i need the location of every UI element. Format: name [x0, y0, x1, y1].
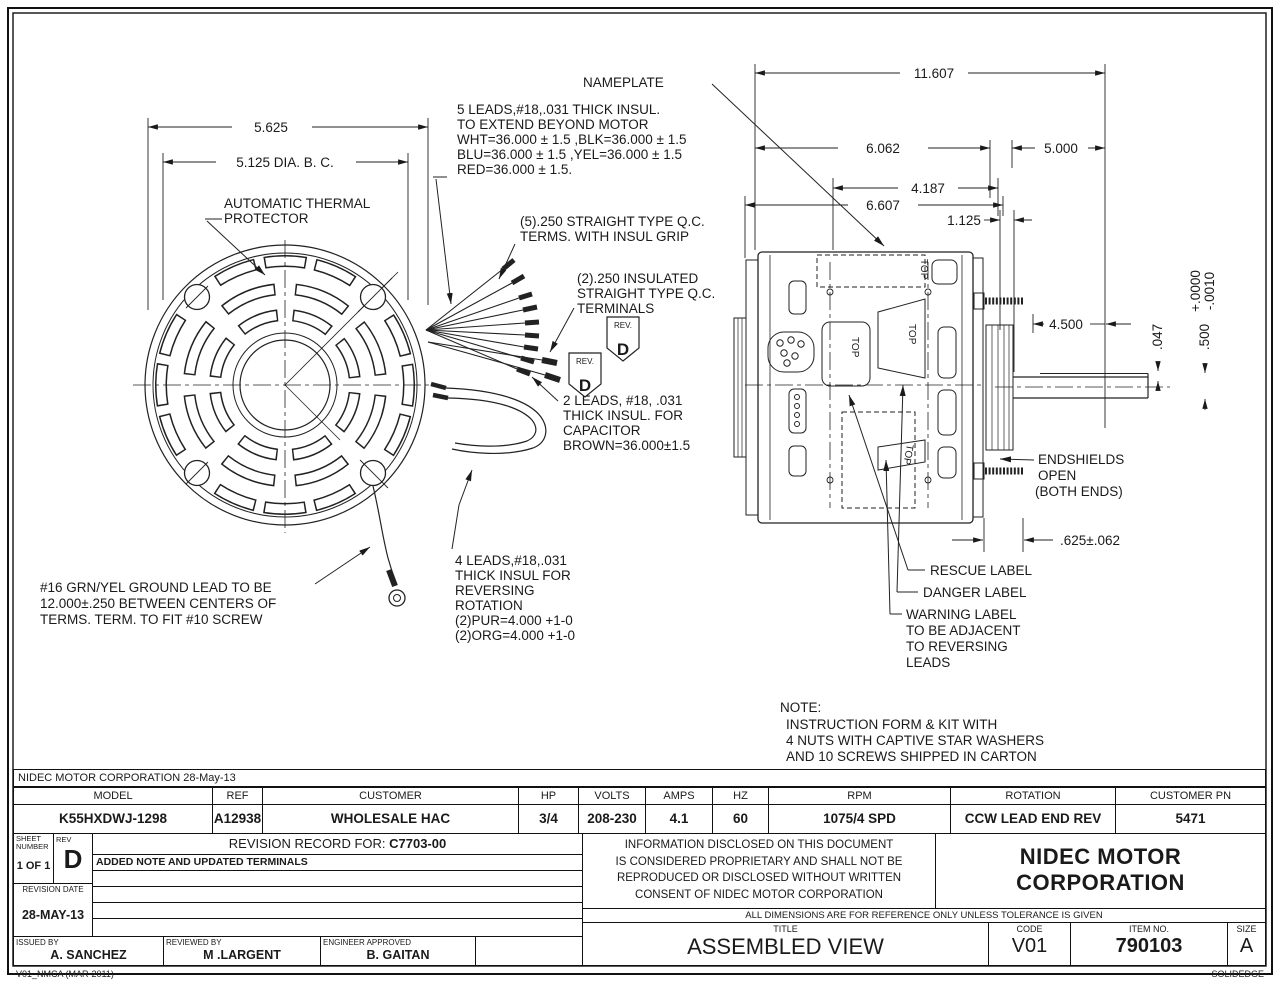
ground-line: 12.000±.250 BETWEEN CENTERS OF: [40, 596, 276, 611]
dim-4187: 4.187: [911, 181, 945, 196]
issued-by-label: ISSUED BY: [14, 937, 163, 948]
reviewed-by-label: REVIEWED BY: [164, 937, 320, 948]
issued-by-value: A. SANCHEZ: [14, 948, 163, 962]
dim-6607: 6.607: [866, 198, 900, 213]
signoff-empty-cell: [475, 936, 583, 966]
endshields-line: (BOTH ENDS): [1035, 484, 1123, 499]
rescue-label: RESCUE LABEL: [930, 563, 1033, 578]
spec-header-model: MODEL: [13, 787, 213, 805]
spec-value-customer-pn: 5471: [1115, 804, 1266, 834]
nameplate-outline: [817, 255, 925, 287]
top-label: TOP: [849, 337, 860, 358]
spec-value-volts: 208-230: [578, 804, 646, 834]
reviewed-by-value: M .LARGENT: [164, 948, 320, 962]
item-no-value: 790103: [1071, 934, 1227, 958]
lead-wires: [426, 260, 560, 453]
item-no-cell: ITEM NO. 790103: [1070, 922, 1228, 966]
revision-date-cell: REVISION DATE 28-MAY-13: [13, 883, 93, 937]
revision-record-title: REVISION RECORD FOR: C7703-00: [92, 833, 583, 855]
drawing-sheet: TOP TOP TOP TOP: [0, 0, 1280, 982]
spec-header-rpm: RPM: [768, 787, 951, 805]
dim-1125: 1.125: [947, 213, 981, 228]
dim-047: .047: [1150, 324, 1165, 350]
revision-record-empty-row: [92, 886, 583, 903]
centerlines-side-view: [745, 262, 1170, 508]
dim-500: .500: [1197, 324, 1212, 350]
title-cell: TITLE ASSEMBLED VIEW: [582, 922, 989, 966]
qc2-line: (2).250 INSULATED: [577, 271, 699, 286]
company-date-line: NIDEC MOTOR CORPORATION 28-May-13: [13, 769, 1266, 787]
company-name-line: NIDEC MOTOR: [936, 844, 1265, 870]
spec-header-hp: HP: [518, 787, 579, 805]
warning-line: TO REVERSING: [906, 639, 1008, 654]
item-no-label: ITEM NO.: [1071, 923, 1227, 934]
engineer-approved-cell: ENGINEER APPROVED B. GAITAN: [320, 936, 476, 966]
spec-value-customer: WHOLESALE HAC: [262, 804, 519, 834]
engineer-approved-value: B. GAITAN: [321, 948, 475, 962]
company-name-line: CORPORATION: [936, 870, 1265, 896]
leads4-line: 4 LEADS,#18,.031: [455, 553, 567, 568]
rev-flag-small-label: REV.: [614, 321, 632, 330]
revision-record-title-pre: REVISION RECORD FOR:: [229, 836, 389, 851]
spec-header-volts: VOLTS: [578, 787, 646, 805]
qc2-line: TERMINALS: [577, 301, 654, 316]
rev-flag-letter: D: [617, 340, 629, 359]
sheet-label-line: NUMBER: [16, 842, 49, 851]
leads4-line: (2)ORG=4.000 +1-0: [455, 628, 575, 643]
note-line: NOTE:: [780, 700, 821, 715]
sheet-number-value: 1 OF 1: [14, 852, 53, 872]
rev-cell: REV D: [53, 833, 93, 884]
revision-record-empty-row: [92, 918, 583, 937]
rev-flag-letter: D: [579, 376, 591, 395]
form-number-note: V01_NMCA (MAR-2011): [16, 969, 114, 979]
leads2-line: BROWN=36.000±1.5: [563, 438, 690, 453]
spec-header-rotation: ROTATION: [950, 787, 1116, 805]
leads4-line: THICK INSUL FOR: [455, 568, 571, 583]
leads5-line: BLU=36.000 ± 1.5 ,YEL=36.000 ± 1.5: [457, 147, 682, 162]
tolerance-note: ALL DIMENSIONS ARE FOR REFERENCE ONLY UN…: [582, 908, 1266, 923]
ground-lead: [373, 486, 405, 606]
code-value: V01: [989, 934, 1070, 958]
leads2-line: 2 LEADS, #18, .031: [563, 393, 682, 408]
spec-value-hp: 3/4: [518, 804, 579, 834]
title-label: TITLE: [583, 923, 988, 934]
size-cell: SIZE A: [1227, 922, 1266, 966]
spec-value-ref: A12938: [212, 804, 263, 834]
top-label: TOP: [906, 324, 917, 345]
shaft: [1013, 374, 1148, 399]
title-value: ASSEMBLED VIEW: [583, 934, 988, 960]
reviewed-by-cell: REVIEWED BY M .LARGENT: [163, 936, 321, 966]
warning-line: WARNING LABEL: [906, 607, 1017, 622]
spec-value-rpm: 1075/4 SPD: [768, 804, 951, 834]
issued-by-cell: ISSUED BY A. SANCHEZ: [13, 936, 164, 966]
centerlines-end-view: [133, 240, 442, 533]
spec-header-ref: REF: [212, 787, 263, 805]
proprietary-line: REPRODUCED OR DISCLOSED WITHOUT WRITTEN: [583, 870, 935, 887]
qc5-line: TERMS. WITH INSUL GRIP: [520, 229, 689, 244]
proprietary-line: IS CONSIDERED PROPRIETARY AND SHALL NOT …: [583, 854, 935, 871]
revision-record-code: C7703-00: [389, 836, 446, 851]
dim-5625: 5.625: [254, 120, 288, 135]
code-cell: CODE V01: [988, 922, 1071, 966]
proprietary-line: INFORMATION DISCLOSED ON THIS DOCUMENT: [583, 837, 935, 854]
revision-date-label: REVISION DATE: [14, 884, 92, 894]
spec-header-customer-pn: CUSTOMER PN: [1115, 787, 1266, 805]
thermal-label-line: PROTECTOR: [224, 211, 309, 226]
leads2-line: THICK INSUL. FOR: [563, 408, 683, 423]
through-bolt-studs: [974, 293, 1024, 479]
proprietary-line: CONSENT OF NIDEC MOTOR CORPORATION: [583, 887, 935, 904]
ground-line: TERMS. TERM. TO FIT #10 SCREW: [40, 612, 263, 627]
warning-line: TO BE ADJACENT: [906, 623, 1021, 638]
top-label: TOP: [918, 259, 929, 280]
qc2-line: STRAIGHT TYPE Q.C.: [577, 286, 715, 301]
dim-5000: 5.000: [1044, 141, 1078, 156]
dim-5125: 5.125 DIA. B. C.: [236, 155, 334, 170]
rev-flags: REV. D REV. D: [569, 317, 639, 397]
rev-value: D: [54, 845, 92, 873]
capacitor-lead-loop: [431, 384, 546, 453]
motor-end-view: [133, 240, 442, 606]
code-label: CODE: [989, 923, 1070, 934]
spec-value-rotation: CCW LEAD END REV: [950, 804, 1116, 834]
title-block: NIDEC MOTOR CORPORATION 28-May-13 MODEL …: [13, 769, 1266, 966]
spec-header-hz: HZ: [712, 787, 769, 805]
thermal-label-line: AUTOMATIC THERMAL: [224, 196, 371, 211]
leads5-line: 5 LEADS,#18,.031 THICK INSUL.: [457, 102, 660, 117]
endshields-line: ENDSHIELDS: [1038, 452, 1124, 467]
ground-line: #16 GRN/YEL GROUND LEAD TO BE: [40, 580, 272, 595]
note-line: INSTRUCTION FORM & KIT WITH: [786, 717, 997, 732]
company-name-block: NIDEC MOTOR CORPORATION: [935, 833, 1266, 909]
note-line: 4 NUTS WITH CAPTIVE STAR WASHERS: [786, 733, 1044, 748]
revision-date-value: 28-MAY-13: [14, 894, 92, 922]
top-label: TOP: [900, 443, 914, 465]
dim-6062: 6.062: [866, 141, 900, 156]
nameplate-label: NAMEPLATE: [583, 75, 664, 90]
dim-11607: 11.607: [914, 66, 954, 81]
spec-value-amps: 4.1: [645, 804, 713, 834]
leads5-line: RED=36.000 ± 1.5.: [457, 162, 572, 177]
revision-record-note: ADDED NOTE AND UPDATED TERMINALS: [92, 854, 583, 871]
spec-value-model: K55HXDWJ-1298: [13, 804, 213, 834]
size-label: SIZE: [1228, 923, 1265, 934]
size-value: A: [1228, 934, 1265, 958]
cad-source-note: SOLIDEDGE: [1211, 969, 1264, 979]
spec-header-customer: CUSTOMER: [262, 787, 519, 805]
leads5-line: WHT=36.000 ± 1.5 ,BLK=36.000 ± 1.5: [457, 132, 686, 147]
internal-labels: [768, 260, 957, 508]
spec-header-amps: AMPS: [645, 787, 713, 805]
dim-tol-minus: -.0010: [1202, 272, 1217, 310]
shaft-hub-stack: [986, 325, 1013, 450]
leads4-line: ROTATION: [455, 598, 523, 613]
endshields-line: OPEN: [1038, 468, 1076, 483]
qc-terminals: [503, 260, 560, 380]
revision-record-empty-row: [92, 902, 583, 919]
mounting-bolts: [185, 278, 393, 488]
danger-label: DANGER LABEL: [923, 585, 1027, 600]
leads5-line: TO EXTEND BEYOND MOTOR: [457, 117, 649, 132]
sheet-number-cell: SHEET NUMBER 1 OF 1: [13, 833, 54, 884]
proprietary-notice: INFORMATION DISCLOSED ON THIS DOCUMENT I…: [582, 833, 936, 909]
rev-flag-small-label: REV.: [576, 357, 594, 366]
note-line: AND 10 SCREWS SHIPPED IN CARTON: [786, 749, 1037, 764]
leads4-line: REVERSING: [455, 583, 535, 598]
qc5-line: (5).250 STRAIGHT TYPE Q.C.: [520, 214, 705, 229]
dim-4500: 4.500: [1049, 317, 1083, 332]
engineer-approved-label: ENGINEER APPROVED: [321, 937, 475, 948]
top-orientation-labels: TOP TOP TOP TOP: [849, 259, 929, 466]
spec-value-hz: 60: [712, 804, 769, 834]
dim-tol-plus: +.0000: [1188, 270, 1203, 312]
revision-record-empty-row: [92, 870, 583, 887]
warning-line: LEADS: [906, 655, 950, 670]
leads4-line: (2)PUR=4.000 +1-0: [455, 613, 573, 628]
leads2-line: CAPACITOR: [563, 423, 641, 438]
dim-625: .625±.062: [1060, 533, 1120, 548]
